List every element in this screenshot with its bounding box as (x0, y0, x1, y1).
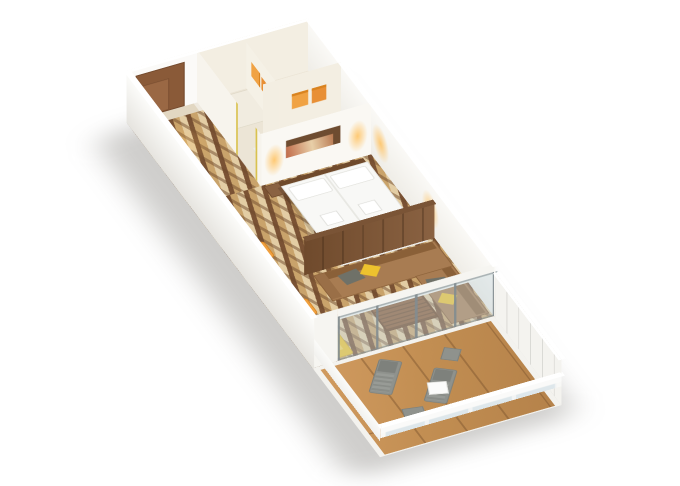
orange-towel (312, 84, 327, 103)
cabin-3d-scene (127, 71, 562, 458)
lit-wall-edge (256, 127, 258, 181)
lounger-backrest (432, 369, 453, 382)
lit-wall-edge (236, 102, 238, 156)
lounger-slats (371, 373, 394, 393)
balcony-side-table (427, 381, 449, 395)
orange-towel (292, 90, 308, 110)
lounger-backrest (377, 360, 398, 373)
orange-towel (251, 62, 260, 88)
gray-ottoman (440, 347, 461, 361)
stateroom-floorplan-render (0, 0, 680, 486)
